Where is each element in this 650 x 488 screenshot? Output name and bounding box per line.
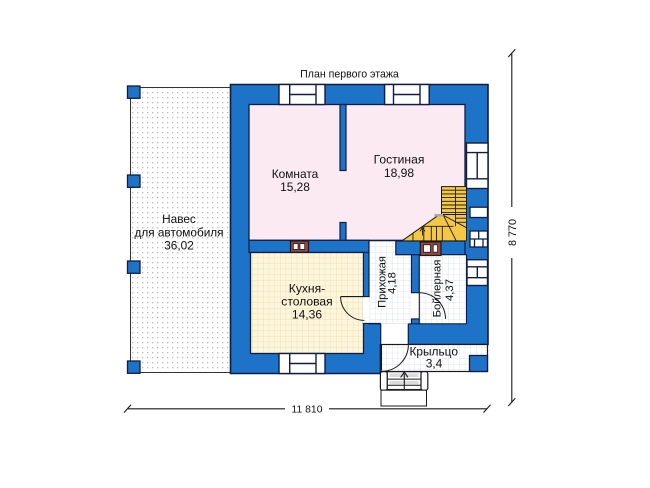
- svg-text:11 810: 11 810: [291, 404, 322, 415]
- svg-text:14,36: 14,36: [292, 307, 323, 321]
- svg-text:Бойлерная: Бойлерная: [432, 260, 444, 318]
- svg-text:Комната: Комната: [272, 167, 319, 181]
- svg-text:8 770: 8 770: [507, 219, 519, 246]
- svg-text:4,37: 4,37: [444, 279, 456, 301]
- svg-text:3,4: 3,4: [426, 357, 443, 371]
- svg-text:Навес: Навес: [162, 212, 196, 226]
- svg-text:Кухня-: Кухня-: [289, 281, 325, 295]
- svg-text:Гостиная: Гостиная: [374, 153, 425, 167]
- svg-text:36,02: 36,02: [164, 238, 194, 252]
- svg-text:18,98: 18,98: [384, 166, 415, 180]
- svg-text:4,18: 4,18: [387, 272, 399, 294]
- svg-text:15,28: 15,28: [280, 180, 310, 194]
- svg-text:План первого этажа: План первого этажа: [300, 69, 399, 81]
- svg-text:столовая: столовая: [281, 294, 332, 308]
- svg-text:для автомобиля: для автомобиля: [134, 225, 223, 239]
